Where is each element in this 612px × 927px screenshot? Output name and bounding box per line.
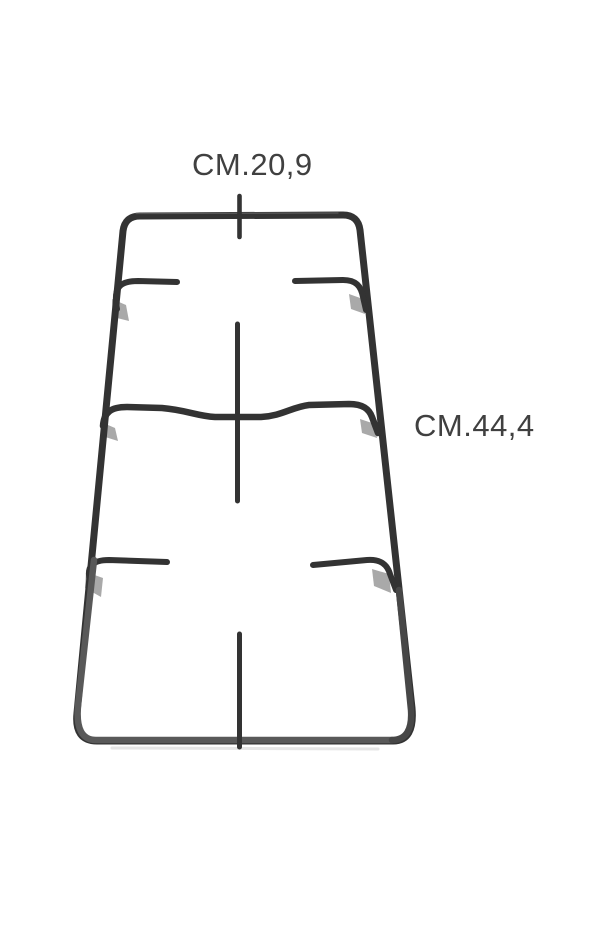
lower-frame-shading-left [78,560,392,740]
top-rail-highlight [136,213,338,214]
ground-shadow [112,748,378,749]
pan-support-grid-drawing [0,0,612,927]
lower-frame-shading-right [392,590,411,740]
center-bars [238,196,240,747]
product-image: CM.20,9 CM.44,4 [0,0,612,927]
width-dimension-label: CM.20,9 [192,149,313,180]
wire-frame [77,215,413,741]
middle-crossbar [103,404,378,433]
length-dimension-label: CM.44,4 [414,410,535,441]
